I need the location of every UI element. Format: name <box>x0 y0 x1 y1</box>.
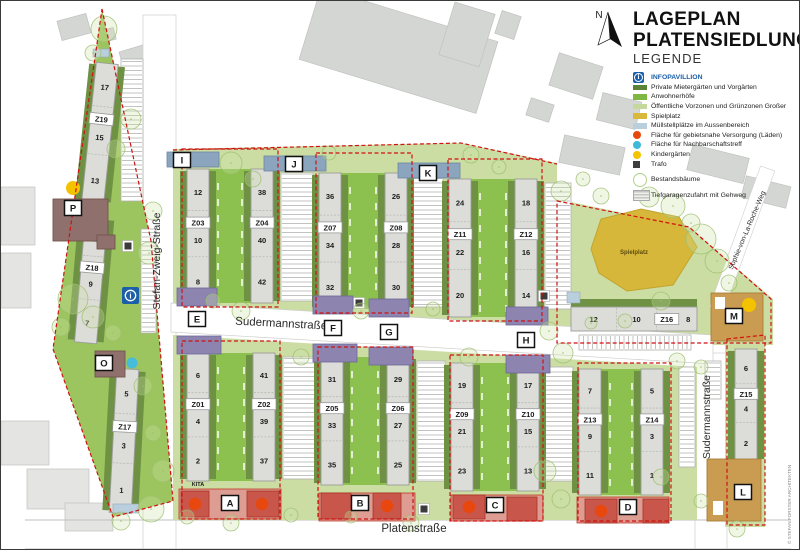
unit-number: 36 <box>326 192 334 201</box>
courtyard-path-mark <box>217 463 219 470</box>
legend-item-label: Bestandsbäume <box>651 176 700 183</box>
marker-J: J <box>286 157 303 172</box>
legend-item-label: Spielplatz <box>651 113 680 120</box>
circle-legend-icon <box>633 131 651 139</box>
plan-title-line1: LAGEPLAN <box>633 9 800 30</box>
z-label: Z01 <box>192 400 205 409</box>
courtyard-path-mark <box>481 473 483 480</box>
z-label: Z19 <box>95 114 109 124</box>
unit-number: 39 <box>260 417 268 426</box>
unit-number: 9 <box>588 432 592 441</box>
courtyard-path-mark <box>481 441 483 448</box>
street-name: Sudermannstraße <box>701 375 713 459</box>
courtyard-path-mark <box>375 187 377 194</box>
courtyard-path-mark <box>375 251 377 258</box>
tree-center <box>716 260 718 262</box>
courtyard-path-mark <box>631 383 633 390</box>
building-group-Z08: 26Z082830 <box>378 173 414 309</box>
courtyard-path-mark <box>349 283 351 290</box>
unit-number: 28 <box>392 241 400 250</box>
courtyard-path-mark <box>505 289 507 296</box>
courtyard-path-mark <box>351 467 353 474</box>
context-building <box>57 13 91 40</box>
legend-item-label: Tiefgaragenzufahrt mit Gehweg <box>651 192 746 199</box>
courtyard-path-mark <box>377 387 379 394</box>
courtyard-path-mark <box>243 383 245 390</box>
marker-H: H <box>518 333 535 348</box>
marker-letter: J <box>291 160 296 171</box>
courtyard-path-mark <box>349 267 351 274</box>
swatch-legend-icon <box>633 85 651 91</box>
z-label: Z08 <box>390 223 403 232</box>
context-building <box>1 253 31 308</box>
garden-band <box>209 171 216 301</box>
tree-center <box>212 300 214 302</box>
street-name: Platenstraße <box>381 523 446 535</box>
z-label: Z15 <box>740 390 753 399</box>
courtyard-path-mark <box>479 209 481 216</box>
legend-item: Trafo <box>633 159 799 169</box>
unit-number: 26 <box>392 192 400 201</box>
context-building <box>559 135 625 175</box>
context-building <box>549 53 603 100</box>
marker-letter: A <box>227 499 234 510</box>
courtyard-path-mark <box>505 225 507 232</box>
courtyard-path-mark <box>243 415 245 422</box>
garden-band <box>728 351 735 459</box>
courtyard-path-mark <box>377 451 379 458</box>
courtyard-path-mark <box>217 215 219 222</box>
courtyard-path-mark <box>351 371 353 378</box>
marker-D: D <box>620 500 637 515</box>
tree-center <box>230 162 232 164</box>
building-group-Z15: 6Z1542 <box>728 349 764 461</box>
unit-number: 12 <box>194 188 202 197</box>
marker-C: C <box>487 498 504 513</box>
parking-strip-hatch <box>282 174 312 300</box>
unit-number: 2 <box>744 439 748 448</box>
legend-item: Spielplatz <box>633 111 799 121</box>
tree-center <box>130 118 132 120</box>
marker-I: I <box>174 153 191 168</box>
marker-K: K <box>420 166 437 181</box>
parking-strip-hatch <box>122 60 142 200</box>
unit-number: 2 <box>196 457 200 466</box>
legend: LEGENDE iINFOPAVILLIONPrivate Mietergärt… <box>633 51 799 200</box>
tree-center <box>60 326 62 328</box>
marker-letter: P <box>70 204 77 215</box>
tree-center <box>252 178 254 180</box>
unit-number: 38 <box>258 188 266 197</box>
context-building <box>1 187 35 245</box>
tree-center <box>290 514 292 516</box>
marker-A: A <box>222 496 239 511</box>
tree-center <box>562 352 564 354</box>
unit-number: 33 <box>328 421 336 430</box>
unit-number: 8 <box>196 278 200 287</box>
unit-number: 30 <box>392 283 400 292</box>
courtyard-path-mark <box>479 273 481 280</box>
garden-band <box>209 355 216 479</box>
unit-number: 1 <box>119 486 124 495</box>
courtyard-path-mark <box>217 447 219 454</box>
unit-number: 42 <box>258 278 266 287</box>
unit-number: 13 <box>524 467 532 476</box>
marker-letter: E <box>194 315 200 326</box>
head-building-purple <box>369 299 409 317</box>
legend-item-label: Müllstellplätze im Aussenbereich <box>651 122 749 129</box>
courtyard-path-mark <box>351 435 353 442</box>
unit-number: 34 <box>326 241 335 250</box>
courtyard-path-mark <box>217 247 219 254</box>
courtyard-path-mark <box>479 241 481 248</box>
parking-strip-hatch <box>680 368 694 466</box>
spielplatz-label: Spielplatz <box>620 250 648 256</box>
courtyard-path-mark <box>507 409 509 416</box>
legend-item: Bestandsbäume <box>633 175 799 185</box>
courtyard-path-mark <box>217 415 219 422</box>
kindergarten-circle <box>66 181 80 195</box>
courtyard-path-mark <box>479 225 481 232</box>
z-label: Z17 <box>118 422 131 432</box>
building-group-Z03: 12Z03108 <box>180 169 216 303</box>
building-notch <box>715 297 725 309</box>
courtyard-path-mark <box>481 409 483 416</box>
marker-letter: D <box>625 503 632 514</box>
unit-number: 10 <box>194 236 202 245</box>
legend-item: Kindergärten <box>633 150 799 160</box>
courtyard-path-mark <box>507 377 509 384</box>
unit-number: 15 <box>95 133 104 143</box>
courtyard-path-mark <box>481 425 483 432</box>
head-building-purple <box>506 355 550 373</box>
building-group-Z06: 29Z062725 <box>380 357 416 485</box>
context-building <box>526 98 554 123</box>
legend-item: Fläche für Nachbarschaftstreff <box>633 140 799 150</box>
courtyard-path-mark <box>609 447 611 454</box>
laden-circle <box>595 505 607 517</box>
garden-band <box>757 351 764 459</box>
unit-number: 35 <box>328 461 336 470</box>
courtyard-path-mark <box>241 279 243 286</box>
courtyard-path-mark <box>243 367 245 374</box>
courtyard-path-mark <box>217 199 219 206</box>
tree-center <box>186 516 188 518</box>
tree-center <box>548 330 550 332</box>
unit-number: 19 <box>458 381 466 390</box>
unit-number: 3 <box>650 432 654 441</box>
courtyard-path-mark <box>609 415 611 422</box>
tree-center <box>690 222 692 224</box>
tree-center <box>103 28 105 30</box>
unit-number: 18 <box>522 198 530 207</box>
courtyard-path-mark <box>375 203 377 210</box>
laden-circle <box>381 500 393 512</box>
marker-L: L <box>735 485 752 500</box>
courtyard-path-mark <box>481 457 483 464</box>
unit-number: 9 <box>88 280 93 289</box>
head-building-purple <box>177 336 221 354</box>
tree-center <box>350 516 352 518</box>
circle-legend-icon <box>633 151 651 159</box>
courtyard-path-mark <box>217 183 219 190</box>
building-group-Z05: 31Z053335 <box>314 357 350 485</box>
plan-title: LAGEPLAN PLATENSIEDLUNG <box>633 9 800 51</box>
garden-band <box>343 359 350 483</box>
courtyard-path-mark <box>507 457 509 464</box>
courtyard-path-mark <box>351 419 353 426</box>
z-label: Z16 <box>660 315 673 324</box>
courtyard-path-mark <box>349 203 351 210</box>
courtyard-path-mark <box>609 399 611 406</box>
courtyard-path-mark <box>243 447 245 454</box>
north-needle-dark <box>608 12 622 47</box>
courtyard-path-mark <box>217 263 219 270</box>
courtyard-path-mark <box>217 367 219 374</box>
courtyard-path-mark <box>241 247 243 254</box>
courtyard-path-mark <box>631 479 633 486</box>
courtyard-path-mark <box>349 187 351 194</box>
head-building-purple <box>369 347 413 365</box>
head-building-purple <box>313 296 353 314</box>
marker-P: P <box>65 201 82 216</box>
marker-letter: G <box>385 328 392 339</box>
z-label: Z11 <box>454 230 467 239</box>
muell-area <box>113 504 139 513</box>
building-group-Z02: 41Z023937 <box>246 353 282 481</box>
garden-band <box>571 299 697 307</box>
unit-number: 23 <box>458 467 466 476</box>
courtyard-path-mark <box>217 383 219 390</box>
legend-item-label: Öffentliche Vorzonen und Grünzonen Große… <box>651 103 786 110</box>
tree-legend-icon <box>633 173 651 187</box>
courtyard-path-mark <box>241 231 243 238</box>
infopavillon-i: i <box>129 292 131 301</box>
courtyard-path-mark <box>631 463 633 470</box>
legend-item-label: INFOPAVILLION <box>651 74 702 81</box>
tree-center <box>600 195 602 197</box>
unit-number: 21 <box>458 427 466 436</box>
courtyard-path-mark <box>243 431 245 438</box>
courtyard-path-mark <box>377 435 379 442</box>
courtyard-path-mark <box>505 209 507 216</box>
tree-center <box>590 322 592 324</box>
tree-center <box>152 432 154 434</box>
legend-item-label: Anwohnerhöfe <box>651 93 695 100</box>
commercial-building <box>643 499 669 523</box>
garden-band <box>634 371 641 493</box>
unit-number: 37 <box>260 457 268 466</box>
courtyard-path-mark <box>351 451 353 458</box>
courtyard-path-mark <box>505 193 507 200</box>
north-arrow: N <box>595 10 622 47</box>
tree-center <box>468 356 470 358</box>
courtyard-path-mark <box>377 467 379 474</box>
unit-number: 7 <box>588 386 592 395</box>
courtyard-path-mark <box>377 403 379 410</box>
unit-number: 24 <box>456 198 465 207</box>
z-label: Z04 <box>256 219 270 228</box>
context-building <box>1 421 49 465</box>
courtyard-path-mark <box>241 263 243 270</box>
z-label: Z03 <box>192 219 205 228</box>
parking-strip-hatch <box>418 362 444 480</box>
unit-number: 15 <box>524 427 532 436</box>
tree-center <box>150 508 152 510</box>
unit-number: 27 <box>394 421 402 430</box>
unit-number: 11 <box>586 471 594 480</box>
marker-O: O <box>96 356 113 371</box>
tree-center <box>162 470 164 472</box>
z-label: Z02 <box>258 400 271 409</box>
unit-number: 40 <box>258 236 266 245</box>
courtyard-path-mark <box>505 257 507 264</box>
tree-center <box>230 522 232 524</box>
courtyard-path-mark <box>507 425 509 432</box>
tree-center <box>152 210 154 212</box>
tree-center <box>432 308 434 310</box>
courtyard-path-mark <box>241 183 243 190</box>
garden-band <box>473 365 480 489</box>
legend-item-label: Trafo <box>651 161 667 168</box>
tree-center <box>560 498 562 500</box>
tree-center <box>700 366 702 368</box>
unit-number: 16 <box>522 248 530 257</box>
courtyard-path-mark <box>479 193 481 200</box>
marker-letter: M <box>730 312 738 323</box>
parking-strip-hatch <box>284 358 314 478</box>
garden-band <box>510 365 517 489</box>
unit-number: 20 <box>456 291 464 300</box>
garden-band <box>508 181 515 315</box>
z-label: Z09 <box>456 410 469 419</box>
unit-number: 41 <box>260 371 268 380</box>
courtyard-path-mark <box>375 219 377 226</box>
legend-item: Müllstellplätze im Aussenbereich <box>633 121 799 131</box>
courtyard-path-mark <box>217 431 219 438</box>
courtyard-path-mark <box>481 393 483 400</box>
legend-item-label: Fläche für Nachbarschaftstreff <box>651 141 742 148</box>
z-label: Z07 <box>324 223 337 232</box>
swatch-legend-icon <box>633 113 651 119</box>
courtyard-path-mark <box>241 199 243 206</box>
marker-letter: O <box>100 359 107 370</box>
tree-center <box>736 528 738 530</box>
courtyard-path-mark <box>505 273 507 280</box>
ramp-legend-icon <box>633 190 651 201</box>
tree-center <box>676 360 678 362</box>
unit-number: 17 <box>100 83 109 93</box>
courtyard-path-mark <box>631 415 633 422</box>
legend-item: Öffentliche Vorzonen und Grünzonen Große… <box>633 102 799 112</box>
unit-number: 10 <box>632 315 640 324</box>
laden-circle <box>463 501 475 513</box>
z-label: Z12 <box>520 230 533 239</box>
courtyard-path-mark <box>351 403 353 410</box>
parking-strip-hatch <box>414 178 442 306</box>
courtyard-path-mark <box>507 393 509 400</box>
marker-E: E <box>189 312 206 327</box>
courtyard-path-mark <box>243 399 245 406</box>
tree-center <box>92 316 94 318</box>
courtyard-path-mark <box>481 377 483 384</box>
courtyard-path-mark <box>243 463 245 470</box>
unit-number: 5 <box>650 386 654 395</box>
legend-item-label: Kindergärten <box>651 151 690 158</box>
marker-M: M <box>726 309 743 324</box>
garden-band <box>273 171 280 301</box>
courtyard-path-mark <box>375 267 377 274</box>
laden-circle <box>256 498 268 510</box>
muell-area <box>567 292 580 303</box>
tree-center <box>544 470 546 472</box>
courtyard-path-mark <box>609 431 611 438</box>
plan-title-line2: PLATENSIEDLUNG <box>633 30 800 51</box>
courtyard-path-mark <box>377 371 379 378</box>
courtyard-path-mark <box>631 399 633 406</box>
courtyard-path-mark <box>479 289 481 296</box>
legend-item: Fläche für gebietsnahe Versorgung (Läden… <box>633 131 799 141</box>
copyright-note: © STEFAN FORSTER ARCHITEKTEN <box>787 465 792 544</box>
courtyard-path-mark <box>349 251 351 258</box>
courtyard-path-mark <box>479 257 481 264</box>
swatch-legend-icon <box>633 104 651 110</box>
unit-number: 22 <box>456 248 464 257</box>
north-label: N <box>595 10 602 21</box>
street-name: Stefan-Zweig-Straße <box>151 212 163 309</box>
tree-center <box>470 154 472 156</box>
courtyard-path-mark <box>217 279 219 286</box>
marker-letter: C <box>492 501 499 512</box>
courtyard-path-mark <box>217 399 219 406</box>
unit-number: 31 <box>328 375 336 384</box>
building-group-Z04: 38Z044042 <box>244 169 280 303</box>
garden-band <box>180 355 187 479</box>
marker-B: B <box>352 496 369 511</box>
trafo-square <box>125 243 132 250</box>
unit-number: 3 <box>121 441 126 450</box>
legend-item: iINFOPAVILLION <box>633 73 799 83</box>
garden-band <box>378 175 385 307</box>
courtyard-path-mark <box>375 235 377 242</box>
tree-center <box>360 310 362 312</box>
kindergarten-circle <box>742 298 756 312</box>
unit-number: 13 <box>90 176 99 186</box>
legend-item-label: Fläche für gebietsnahe Versorgung (Läden… <box>651 132 782 139</box>
building-group-Z01: 6Z0142 <box>180 353 216 481</box>
courtyard-path-mark <box>609 383 611 390</box>
z-label: Z18 <box>85 263 99 273</box>
legend-heading: LEGENDE <box>633 51 799 66</box>
legend-item-label: Private Mietergärten und Vorgärten <box>651 84 757 91</box>
marker-letter: F <box>330 324 336 335</box>
commercial-building <box>507 497 537 521</box>
unit-number: 8 <box>686 315 690 324</box>
lageplan-canvas: Spielplatz17Z19151311Z18975Z173112Z03108… <box>0 0 800 550</box>
z-label: Z10 <box>522 410 535 419</box>
tree-center <box>728 282 730 284</box>
courtyard-path-mark <box>631 431 633 438</box>
building-group-Z07: 36Z073432 <box>312 173 348 309</box>
tree-center <box>582 178 584 180</box>
courtyard-path-mark <box>609 463 611 470</box>
courtyard-path-mark <box>349 235 351 242</box>
tree-center <box>660 300 662 302</box>
tree-center <box>300 356 302 358</box>
garden-band <box>341 175 348 307</box>
unit-number: 5 <box>124 389 129 398</box>
laden-circle <box>189 498 201 510</box>
